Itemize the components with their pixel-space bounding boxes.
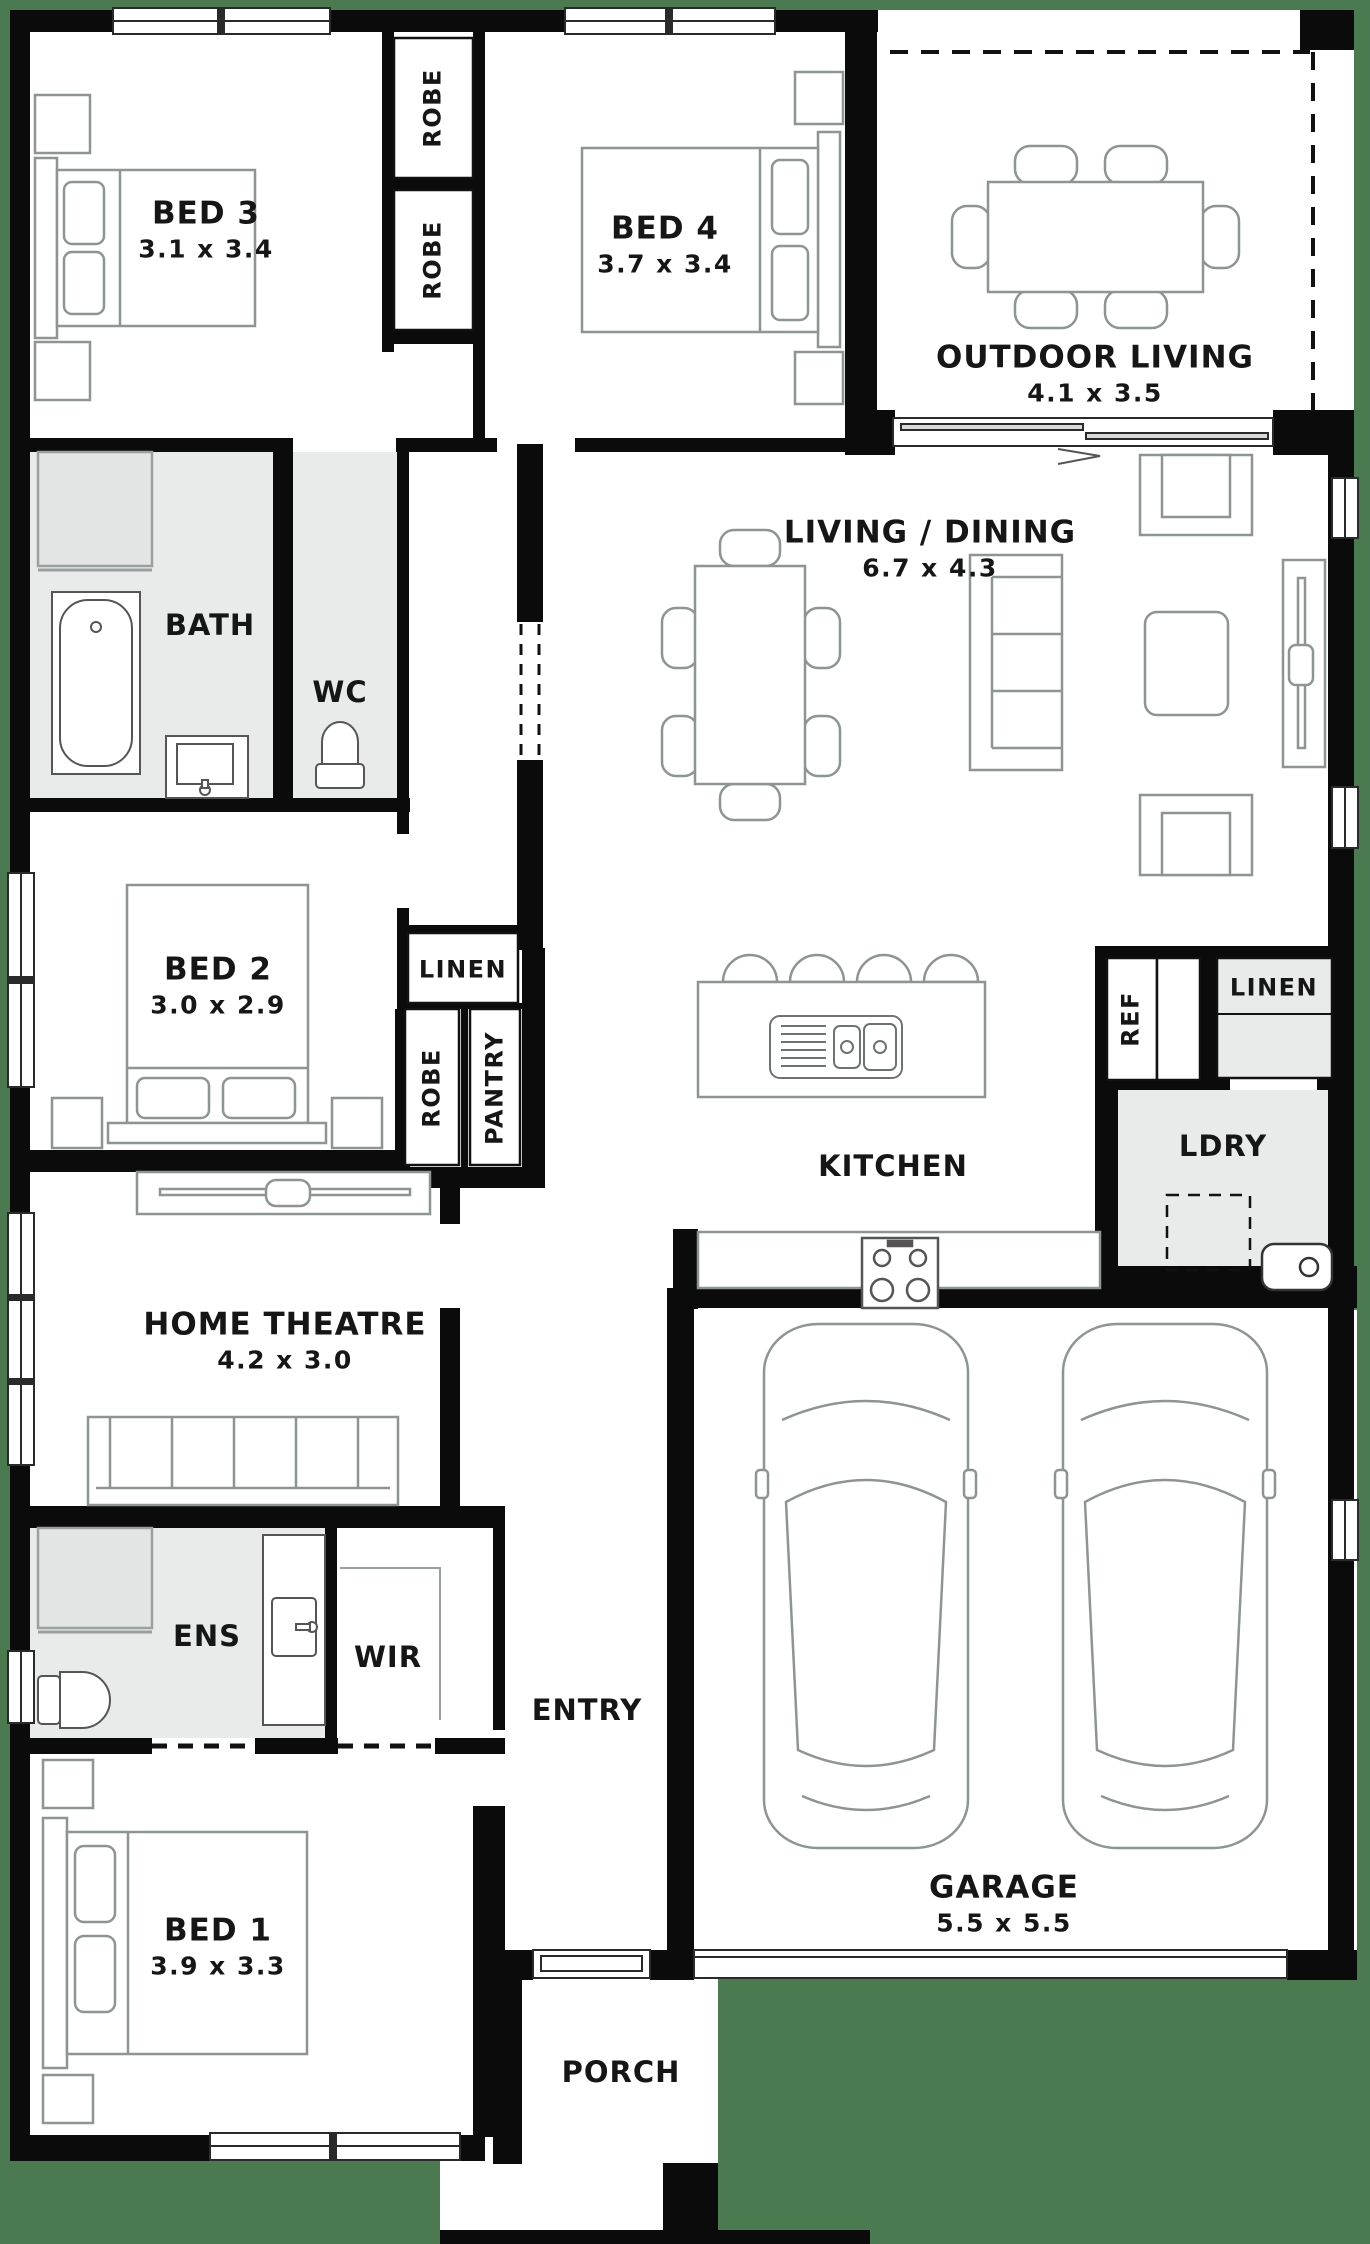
chair-icon [1015,146,1077,184]
robe-bed2-box [405,1009,459,1165]
wall-east [1328,450,1354,1950]
chair-icon [720,530,780,566]
chair-icon [662,716,698,776]
linen-hall-box [408,933,518,1003]
wall-theatre-ens [10,1506,505,1528]
laundry-tub-icon [1262,1244,1332,1290]
wall-hall-living-lower [517,760,543,950]
armchair-icon [1140,455,1252,535]
wall-bed3-robe [382,30,394,352]
shower-icon [38,1528,152,1632]
wall-entry-garage [667,1306,694,1952]
toilet-icon [38,1672,110,1728]
car-icon [1055,1324,1275,1848]
wall-bed2-theatre [10,1150,410,1172]
chair-icon [1105,290,1167,328]
wall-bath-wc [273,452,293,806]
wall-porch-left [493,1950,522,2164]
wall-hall-living-upper [517,444,543,622]
bedside-table-icon [52,1098,102,1148]
bedside-table-icon [35,95,90,153]
pantry-box [470,1009,520,1165]
wall-bed1-east [473,1806,493,2137]
pillow [64,252,104,314]
wall-bath-bed2 [10,798,410,812]
bedside-table-icon [795,72,843,124]
window-garage [1332,1500,1358,1560]
chair-icon [952,206,990,268]
bedside-table-icon [43,1760,93,1808]
window-bed2 [8,873,34,1087]
wall-entry-west-upper [493,1528,505,1730]
tv-unit-icon [1283,560,1325,767]
car-icon [756,1324,976,1848]
bedside-table-icon [795,352,843,404]
linen-laundry-box [1217,958,1332,1078]
wall-ens-wir [325,1528,337,1740]
wall-garage-north [667,1288,1357,1308]
front-door [533,1950,650,1978]
armchair-icon [1140,795,1252,875]
theatre-tv-unit-icon [137,1172,430,1214]
chair-icon [720,784,780,820]
chair-icon [804,716,840,776]
wall-robe-bed4 [473,30,485,452]
sofa-icon [970,555,1062,770]
shower-icon [38,452,152,570]
pillow [75,1846,115,1922]
headboard [43,1818,67,2068]
coffee-table-icon [1145,612,1228,715]
bedside-table-icon [43,2075,93,2123]
wall-entry-kitchen [673,1229,698,1309]
window-ens [8,1651,34,1723]
chair-icon [1201,206,1239,268]
garage-door [694,1950,1287,1978]
bedside-table-icon [332,1098,382,1148]
headboard [108,1123,326,1143]
pillow [772,246,808,320]
floor-plan-drawing [0,0,1370,2244]
pillow [137,1078,209,1118]
chair-icon [662,608,698,668]
chair-icon [1105,146,1167,184]
dining-table-icon [695,566,805,784]
window-bed4 [565,8,775,34]
cooktop-icon [862,1238,938,1308]
wall-bed4-outdoor [845,10,877,455]
sliding-door-living [893,418,1273,446]
vanity-sink-icon [166,736,248,798]
window-bed3 [113,8,330,34]
window-bed1 [210,2133,460,2160]
robe-bed3-top-box [394,38,473,178]
pillow [64,182,104,244]
headboard [35,158,57,338]
headboard [818,132,840,347]
wall-pantry-kitchen [522,948,545,1188]
theatre-sofa-icon [88,1417,398,1505]
floor-plan: BED 33.1 x 3.4ROBEROBEBED 43.7 x 3.4OUTD… [0,0,1370,2244]
kitchen-island-icon [698,955,985,1097]
window-theatre [8,1213,34,1465]
window-living-2 [1332,787,1358,848]
bathtub-icon [52,592,140,774]
wall-living-ref [1095,946,1335,958]
wall-theatre-entry [440,1308,460,1522]
porch-edge [440,2230,870,2244]
wall-outdoor-ne-corner [1300,10,1354,50]
kitchen-sink-icon [770,1016,902,1078]
fridge-space-box [1107,958,1157,1080]
outdoor-table-icon [988,182,1203,292]
wall-entry-west-lower [493,1806,505,1952]
laundry-floor [1118,1090,1330,1268]
pillow [772,160,808,234]
wall-wc-hall [397,438,409,812]
chair-icon [804,608,840,668]
window-living-1 [1332,478,1358,538]
wall-slider-right [1273,410,1354,455]
pillow [75,1936,115,2012]
pillow [223,1078,295,1118]
robe-bed3-bottom-box [394,190,473,330]
bedside-table-icon [35,342,90,400]
porch-post [663,2163,718,2230]
chair-icon [1015,290,1077,328]
vanity-sink-icon [263,1535,325,1725]
